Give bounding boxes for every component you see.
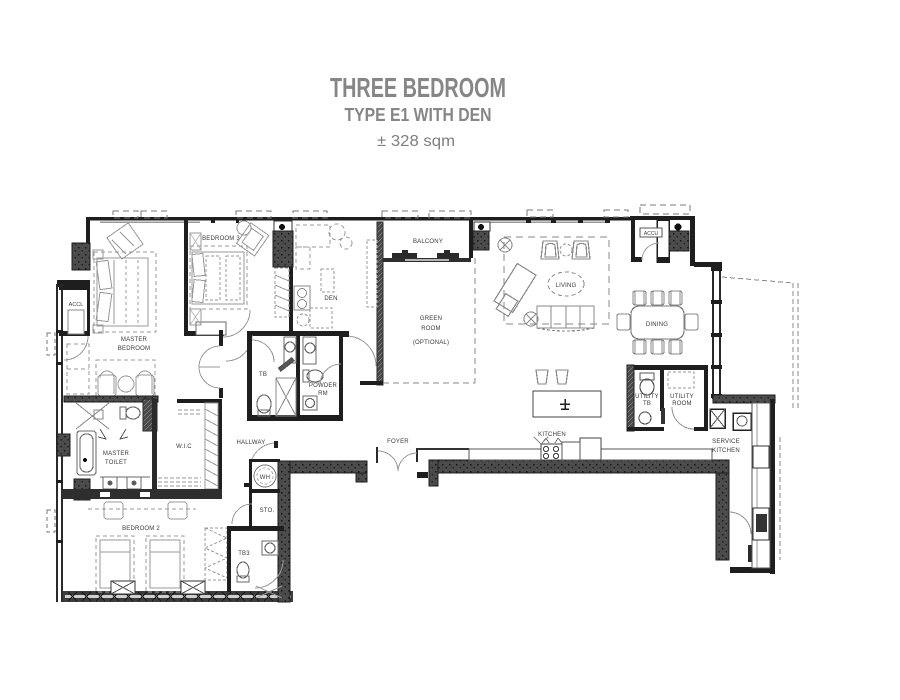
svg-text:STO.: STO. — [260, 508, 275, 514]
svg-text:W.I.C: W.I.C — [176, 444, 192, 450]
svg-text:TB3: TB3 — [238, 551, 250, 557]
svg-text:TOILET: TOILET — [105, 460, 127, 466]
svg-text:TYPE E1 WITH DEN: TYPE E1 WITH DEN — [345, 104, 492, 125]
svg-text:THREE BEDROOM: THREE BEDROOM — [330, 72, 506, 103]
svg-text:GREEN: GREEN — [420, 316, 442, 322]
svg-text:ACCU: ACCU — [644, 231, 659, 237]
svg-text:BALCONY: BALCONY — [413, 239, 443, 245]
svg-text:SERVICE: SERVICE — [712, 439, 740, 445]
svg-text:(OPTIONAL): (OPTIONAL) — [413, 340, 449, 346]
svg-text:UTILITY: UTILITY — [670, 394, 694, 400]
svg-text:DEN: DEN — [324, 296, 337, 302]
svg-text:BEDROOM 3: BEDROOM 3 — [202, 236, 240, 242]
svg-text:± 328 sqm: ± 328 sqm — [377, 133, 455, 150]
svg-text:BEDROOM 2: BEDROOM 2 — [122, 526, 160, 532]
svg-text:FOYER: FOYER — [387, 439, 409, 445]
svg-text:BEDROOM: BEDROOM — [118, 346, 150, 352]
svg-text:TB: TB — [259, 372, 267, 378]
svg-text:ROOM: ROOM — [421, 326, 440, 332]
svg-text:KITCHEN: KITCHEN — [538, 432, 566, 438]
svg-text:MASTER: MASTER — [121, 337, 148, 343]
svg-text:TB: TB — [643, 401, 651, 407]
svg-text:MASTER: MASTER — [103, 451, 130, 457]
svg-text:DINING: DINING — [646, 322, 668, 328]
svg-text:RM: RM — [318, 391, 328, 397]
svg-text:HALLWAY: HALLWAY — [237, 440, 266, 446]
svg-text:ACCL: ACCL — [69, 302, 84, 308]
svg-text:LIVING: LIVING — [556, 283, 577, 289]
svg-text:WH: WH — [260, 475, 270, 481]
svg-text:ROOM: ROOM — [672, 401, 691, 407]
svg-text:POWDER: POWDER — [309, 383, 338, 389]
svg-text:KITCHEN: KITCHEN — [712, 448, 740, 454]
